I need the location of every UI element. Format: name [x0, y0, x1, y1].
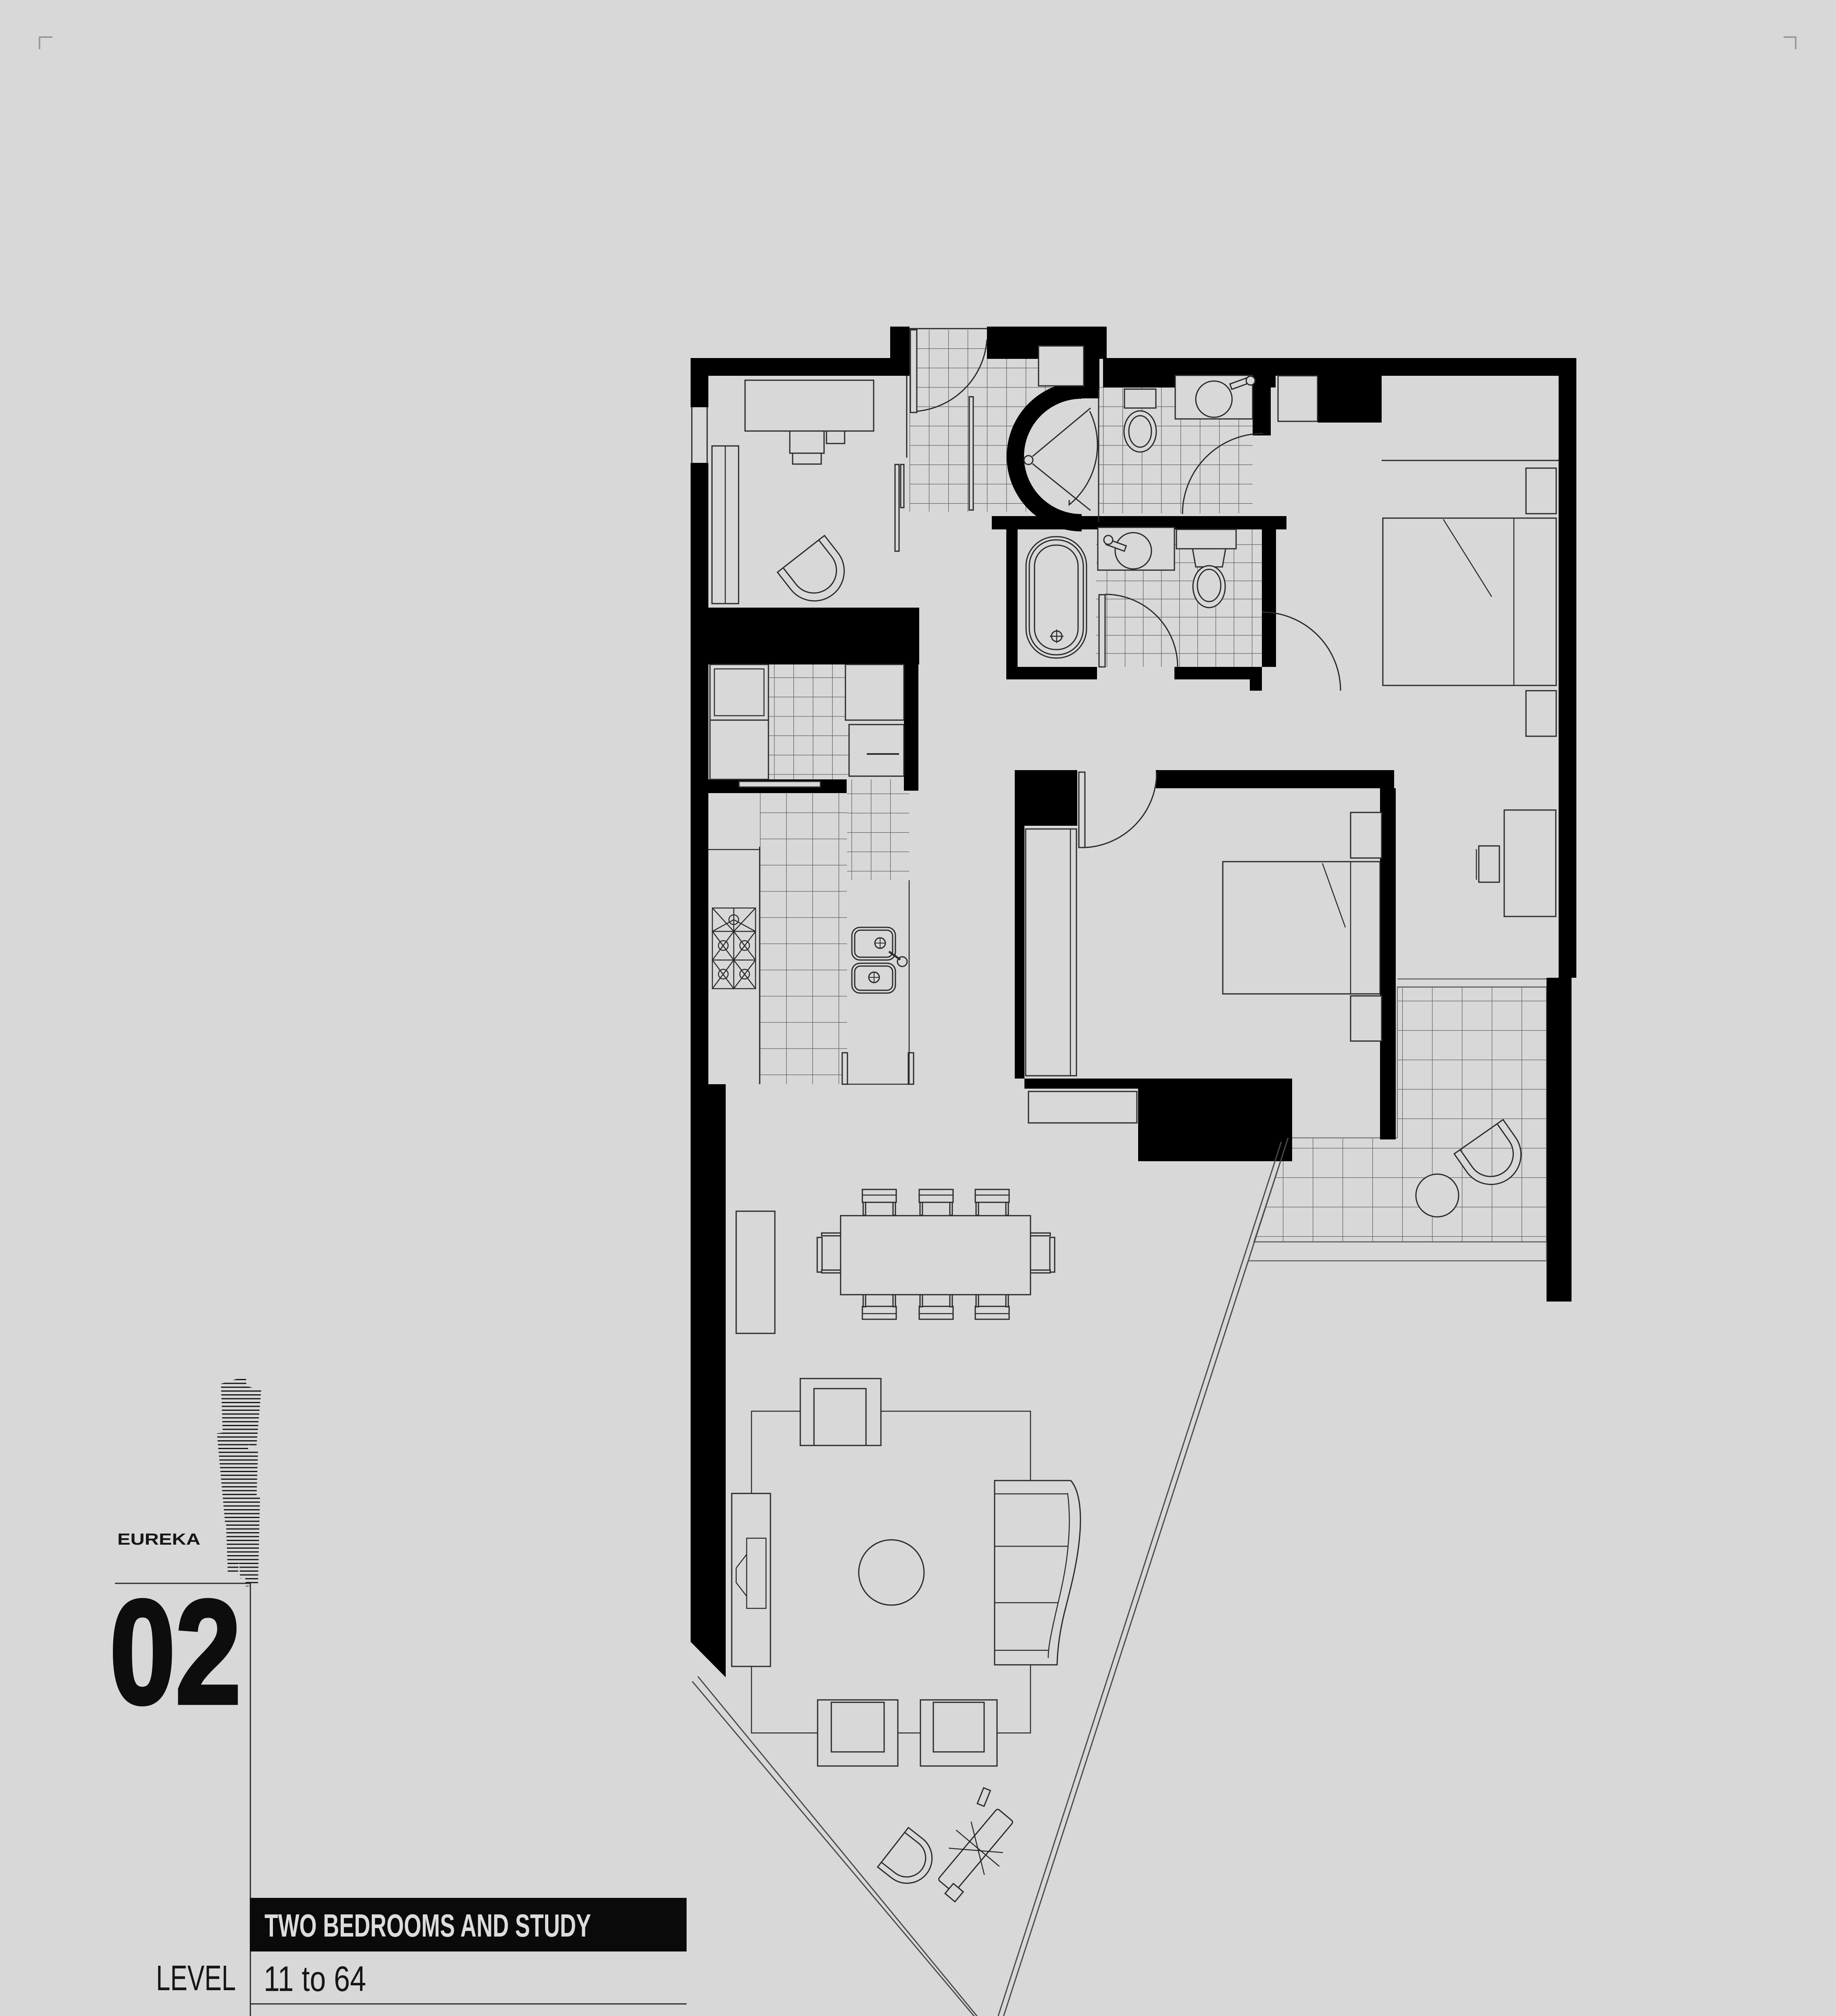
svg-text:EUREKA: EUREKA: [117, 1531, 200, 1548]
svg-text:LEVEL: LEVEL: [156, 1958, 236, 1998]
svg-text:11 to 64: 11 to 64: [264, 1959, 366, 1999]
svg-text:128 m²: 128 m²: [264, 2014, 355, 2016]
svg-text:TWO BEDROOMS AND STUDY: TWO BEDROOMS AND STUDY: [264, 1908, 591, 1943]
svg-text:02: 02: [110, 1569, 241, 1735]
svg-text:INTERNAL: INTERNAL: [108, 2014, 236, 2016]
